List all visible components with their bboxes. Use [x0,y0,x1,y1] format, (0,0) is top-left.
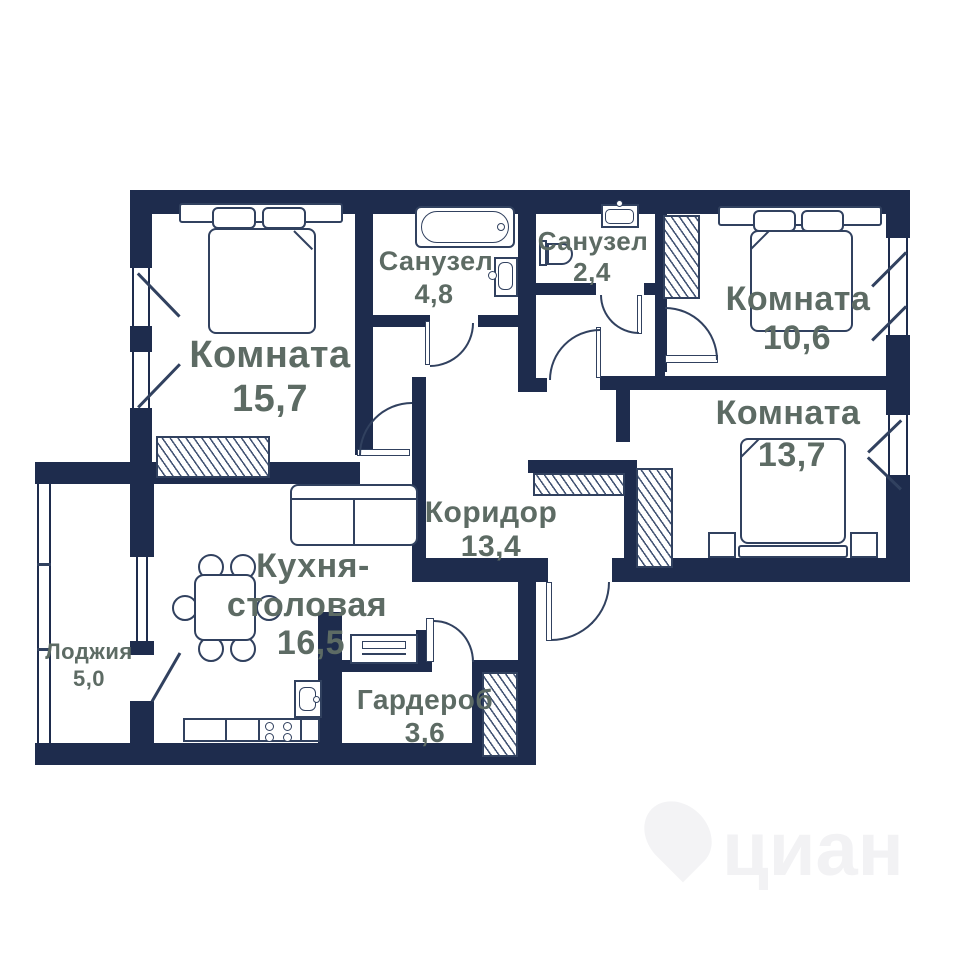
bed-headboard [738,545,848,558]
pillow [801,210,844,232]
room-label-kitchen-line2: столовая [227,588,387,622]
room-label-kitchen-line1: Кухня- [256,549,370,583]
counter-divider [258,718,260,742]
kitchen-sink-tap [313,696,320,703]
stove-burner [265,733,274,742]
room-label-loggia-name: Лоджия [45,641,133,663]
wall-closet-nook-top [528,460,637,473]
room-label-corridor-name: Коридор [425,498,558,528]
wall-mid-vertical [518,190,536,392]
wall-outer-right-b [886,335,910,415]
tv-stand-detail [362,641,406,649]
window-loggia-mullion [37,563,51,566]
entrance-door-arc [551,582,610,641]
window-room157-lower [132,352,150,408]
sink-bowl [498,262,513,290]
counter-divider [225,718,227,742]
wall-hall-bottom [518,378,547,392]
wall-outer-left-c [130,408,152,462]
wall-bath48-bottom-right [478,315,518,327]
sofa-divider [353,500,355,544]
wall-loggia-partition-a [130,462,154,557]
corridor-closet [533,473,625,496]
bathtub-inner [421,211,509,243]
room-label-bath24-name: Санузел [538,228,648,254]
bathtub-drain [497,223,505,231]
wardrobe-cabinet [156,436,270,478]
wall-loggia-partition-b [130,641,154,655]
window-kitchen-loggia [136,557,148,641]
room-label-bath48-area: 4,8 [414,281,453,308]
tv-stand [350,634,418,664]
watermark-cian [631,788,726,883]
bed-headboard [179,203,343,223]
bed-headboard [718,206,882,226]
room-label-room157-area: 15,7 [232,380,308,418]
door-arc-corridor-hall [549,329,600,380]
room-label-kitchen-area: 16,5 [277,626,345,660]
wardrobe-cabinet [636,468,673,568]
stove-burner [283,722,292,731]
wall-outer-bottom [130,743,536,765]
room-label-wardrobe-name: Гардероб [357,686,493,714]
tv-stand-line [362,653,406,655]
room-label-room137-area: 13,7 [758,438,826,472]
room-label-corridor-area: 13,4 [461,532,521,562]
wall-wardrobe-right [518,560,536,765]
door-arc-wardrobe [434,620,474,662]
stove-burner [265,722,274,731]
sink-bowl [605,209,634,224]
room-label-room157-name: Комната [189,336,350,374]
balcony-door-leaf [151,652,182,702]
pillow [212,207,256,229]
room-label-loggia-area: 5,0 [73,668,105,690]
wall-stub-room137 [616,390,630,442]
pillow [262,207,306,229]
wall-wardrobe-topright [472,660,518,672]
counter-divider [300,718,302,742]
sink-tap [616,200,623,207]
double-bed [208,228,316,334]
wall-loggia-partition-c [130,701,154,765]
wall-loggia-top [35,462,130,484]
door-arc-bath24 [600,295,639,334]
room-label-bath48-name: Санузел [379,248,494,275]
wall-corridor-left [412,377,426,580]
room-label-room106-area: 10,6 [763,321,831,355]
wall-outer-left-b [130,326,152,352]
wall-loggia-bottom [35,743,130,765]
wall-outer-left-a [130,214,152,268]
room-label-bath24-area: 2,4 [573,259,611,285]
nightstand [708,532,736,558]
nightstand [850,532,878,558]
door-arc-bath48 [430,323,474,367]
door-leaf-wardrobe [426,618,434,662]
door-arc-room106 [665,307,718,360]
watermark-cian-text: циан [722,806,904,893]
room-label-room137-name: Комната [716,396,861,430]
floorplan-canvas: циан [0,0,960,960]
wall-room157-right [355,214,373,455]
window-loggia-left [37,484,51,743]
wardrobe-cabinet [663,215,700,299]
wall-outer-right-a [886,190,910,238]
room-label-wardrobe-area: 3,6 [405,719,445,747]
wall-bath48-bottom-left [355,315,430,327]
wall-jog-room106 [655,355,665,376]
wall-divider-rooms [600,376,886,390]
room-label-room106-name: Комната [726,282,871,316]
stove-burner [283,733,292,742]
pillow [753,210,796,232]
wall-bath24-bottom-right [644,283,655,295]
